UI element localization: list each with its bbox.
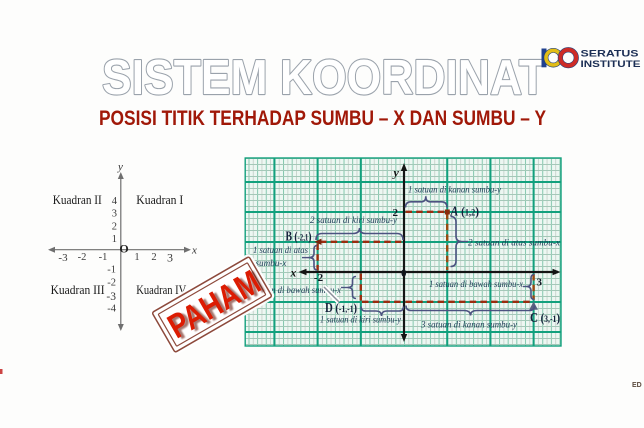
svg-text:4: 4 — [112, 196, 118, 207]
svg-text:1: 1 — [134, 252, 139, 263]
svg-text:y: y — [392, 166, 400, 180]
svg-text:O: O — [119, 242, 128, 256]
svg-text:3: 3 — [167, 251, 173, 265]
svg-text:A (1,2): A (1,2) — [450, 204, 479, 219]
svg-text:1 satuan di atas: 1 satuan di atas — [253, 245, 308, 255]
svg-text:-4: -4 — [107, 304, 116, 315]
svg-text:0: 0 — [401, 268, 407, 280]
svg-text:1 satuan di kanan sumbu-y: 1 satuan di kanan sumbu-y — [408, 185, 501, 195]
svg-text:SERATUS: SERATUS — [581, 49, 639, 60]
svg-text:sumbu-x: sumbu-x — [256, 258, 287, 268]
svg-text:2: 2 — [112, 222, 117, 233]
svg-text:2 satuan di kiri sumbu-y: 2 satuan di kiri sumbu-y — [310, 215, 397, 225]
svg-text:Kuadran II: Kuadran II — [53, 193, 102, 207]
svg-text:-2: -2 — [107, 278, 116, 289]
svg-text:3: 3 — [537, 277, 543, 289]
svg-text:Kuadran III: Kuadran III — [51, 283, 105, 297]
svg-text:1 satuan di kiri sumbu-y: 1 satuan di kiri sumbu-y — [320, 315, 401, 325]
svg-text:1: 1 — [112, 234, 117, 245]
svg-text:-1: -1 — [99, 252, 108, 263]
svg-text:INSTITUTE: INSTITUTE — [581, 59, 641, 70]
svg-text:y: y — [117, 161, 123, 173]
svg-text:ED: ED — [632, 382, 642, 389]
svg-text:x: x — [290, 268, 297, 280]
svg-text:SISTEM KOORDINAT: SISTEM KOORDINAT — [102, 51, 546, 105]
svg-text:-1: -1 — [107, 265, 116, 276]
svg-text:-3: -3 — [58, 252, 68, 264]
svg-text:2 satuan di atas sumbu-x: 2 satuan di atas sumbu-x — [468, 238, 560, 248]
svg-text:POSISI TITIK TERHADAP SUMBU –: POSISI TITIK TERHADAP SUMBU – X DAN SUMB… — [99, 107, 546, 130]
svg-text:3: 3 — [112, 209, 117, 220]
svg-text:-2: -2 — [314, 272, 324, 284]
svg-text:x: x — [191, 245, 197, 257]
svg-text:2: 2 — [151, 252, 156, 263]
svg-text:Kuadran I: Kuadran I — [136, 193, 183, 207]
svg-text:3 satuan di kanan sumbu-y: 3 satuan di kanan sumbu-y — [420, 320, 517, 330]
svg-text:-2: -2 — [78, 252, 87, 263]
svg-text:1 satuan di bawah sumbu-x: 1 satuan di bawah sumbu-x — [429, 279, 523, 289]
svg-text:-3: -3 — [106, 291, 116, 303]
